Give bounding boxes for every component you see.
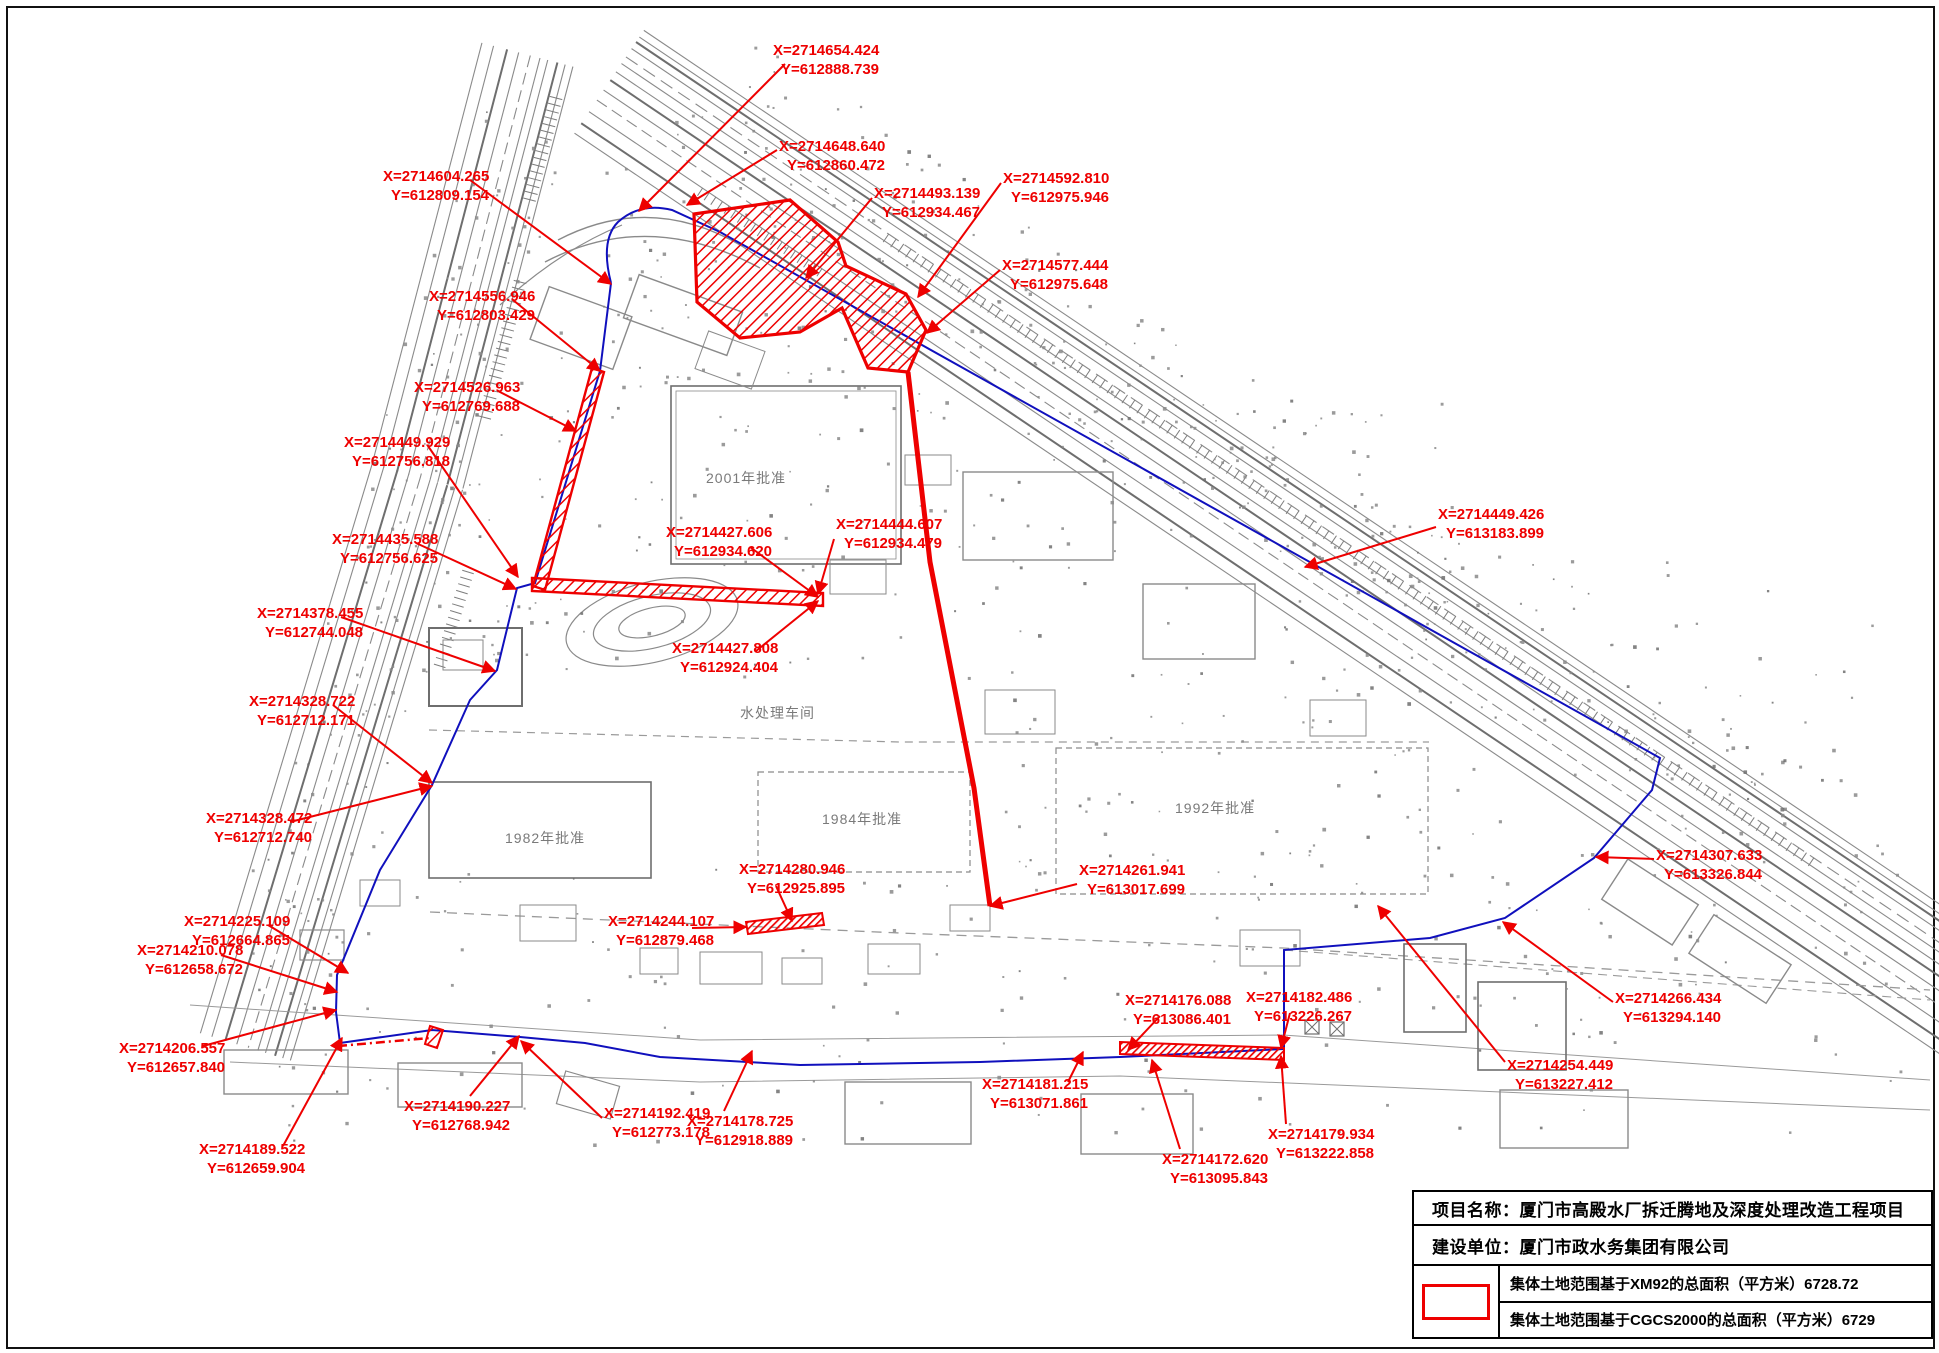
survey-point-dot bbox=[1185, 587, 1188, 590]
survey-point-dot bbox=[1334, 546, 1336, 548]
survey-point-dot bbox=[982, 602, 985, 605]
survey-point-dot bbox=[1212, 477, 1214, 479]
railway-tick bbox=[1204, 450, 1210, 458]
railway-tick bbox=[1368, 561, 1374, 569]
survey-point-dot bbox=[1689, 935, 1693, 939]
survey-point-dot bbox=[300, 913, 302, 915]
survey-point-dot bbox=[292, 1066, 295, 1069]
survey-point-dot bbox=[837, 437, 840, 440]
survey-point-dot bbox=[1409, 574, 1413, 578]
survey-point-dot bbox=[906, 264, 908, 266]
coordinate-y-text: Y=612975.946 bbox=[1011, 189, 1109, 206]
survey-point-dot bbox=[788, 345, 790, 347]
survey-point-dot bbox=[1754, 783, 1756, 785]
survey-point-dot bbox=[497, 620, 499, 622]
survey-point-dot bbox=[358, 734, 361, 737]
survey-point-dot bbox=[287, 900, 290, 903]
survey-point-dot bbox=[861, 1137, 864, 1140]
survey-point-dot bbox=[583, 631, 585, 633]
railway-tick bbox=[1018, 324, 1024, 332]
survey-point-dot bbox=[1713, 765, 1716, 768]
survey-point-dot bbox=[1218, 871, 1220, 873]
survey-point-dot bbox=[1193, 427, 1196, 430]
survey-point-dot bbox=[306, 950, 310, 954]
railway-tick bbox=[1734, 807, 1740, 815]
survey-point-dot bbox=[1535, 1024, 1538, 1027]
survey-point-dot bbox=[560, 599, 562, 601]
survey-point-dot bbox=[1729, 794, 1731, 796]
survey-point-dot bbox=[1691, 931, 1693, 933]
survey-point-dot bbox=[867, 1039, 870, 1042]
survey-point-dot bbox=[511, 227, 514, 230]
survey-point-dot bbox=[532, 147, 536, 151]
survey-point-dot bbox=[1543, 719, 1546, 722]
survey-point-dot bbox=[497, 189, 500, 192]
survey-point-dot bbox=[1243, 475, 1246, 478]
railway-tick bbox=[1361, 556, 1367, 564]
area-statements: 集体土地范围基于XM92的总面积（平方米）6728.72 集体土地范围基于CGC… bbox=[1500, 1266, 1931, 1337]
survey-point-dot bbox=[982, 303, 984, 305]
coordinate-x-text: X=2714444.607 bbox=[836, 516, 942, 533]
survey-point-dot bbox=[1204, 478, 1206, 480]
railway-tick bbox=[478, 416, 491, 419]
survey-point-dot bbox=[374, 704, 376, 706]
survey-point-dot bbox=[459, 881, 461, 883]
railway-tick bbox=[1696, 782, 1702, 790]
railway-tick bbox=[434, 664, 445, 667]
survey-point-dot bbox=[1896, 874, 1899, 877]
survey-point-dot bbox=[1357, 591, 1360, 594]
survey-point-dot bbox=[1211, 487, 1214, 490]
survey-point-dot bbox=[493, 654, 495, 656]
leader-line bbox=[1152, 1060, 1180, 1149]
survey-point-dot bbox=[1280, 551, 1282, 553]
area-row-cgcs2000: 集体土地范围基于CGCS2000的总面积（平方米）6729 bbox=[1500, 1303, 1931, 1338]
site-plan-drawing: X=2714654.424Y=612888.739X=2714648.640Y=… bbox=[0, 0, 1939, 1353]
railway-tick bbox=[454, 597, 465, 600]
survey-point-dot bbox=[362, 713, 364, 715]
survey-point-dot bbox=[860, 106, 862, 108]
coordinate-y-text: Y=612769.688 bbox=[422, 398, 520, 415]
survey-point-dot bbox=[518, 243, 522, 247]
leader-line bbox=[818, 539, 834, 594]
survey-point-dot bbox=[857, 387, 861, 391]
survey-point-dot bbox=[1019, 970, 1021, 972]
survey-point-dot bbox=[882, 260, 884, 262]
railway-tick bbox=[1764, 828, 1770, 836]
survey-point-dot bbox=[1332, 411, 1336, 415]
survey-point-dot bbox=[1688, 736, 1690, 738]
survey-point-dot bbox=[516, 280, 520, 284]
railway-tick bbox=[1256, 485, 1262, 493]
coordinate-callout: X=2714648.640Y=612860.472 bbox=[687, 138, 885, 205]
railway-tick bbox=[1197, 445, 1203, 453]
survey-point-dot bbox=[832, 204, 835, 207]
survey-point-dot bbox=[639, 367, 641, 369]
survey-point-dot bbox=[1835, 1053, 1837, 1055]
railway-tick bbox=[1114, 390, 1120, 398]
survey-point-dot bbox=[1520, 603, 1522, 605]
survey-point-dot bbox=[1203, 404, 1205, 406]
survey-point-dot bbox=[1692, 742, 1694, 744]
survey-point-dot bbox=[311, 793, 314, 796]
survey-point-dot bbox=[1580, 972, 1583, 975]
coordinate-callout: X=2714178.725Y=612918.889 bbox=[687, 1051, 793, 1149]
survey-point-dot bbox=[936, 953, 938, 955]
survey-point-dot bbox=[1705, 687, 1707, 689]
survey-point-dot bbox=[1434, 623, 1436, 625]
survey-point-dot bbox=[888, 965, 890, 967]
survey-point-dot bbox=[448, 534, 451, 537]
survey-point-dot bbox=[1320, 572, 1323, 575]
coordinate-callout: X=2714244.107Y=612879.468 bbox=[608, 913, 746, 949]
survey-point-dot bbox=[863, 882, 866, 885]
survey-point-dot bbox=[1094, 411, 1097, 414]
survey-point-dot bbox=[1085, 811, 1087, 813]
survey-point-dot bbox=[1144, 1059, 1147, 1062]
survey-point-dot bbox=[1607, 721, 1609, 723]
survey-point-dot bbox=[1042, 346, 1045, 349]
survey-point-dot bbox=[842, 370, 845, 373]
survey-point-dot bbox=[341, 941, 343, 943]
survey-point-dot bbox=[1656, 647, 1659, 650]
survey-point-dot bbox=[1472, 833, 1474, 835]
coordinate-callout: X=2714280.946Y=612925.895 bbox=[739, 861, 845, 921]
railway-tick bbox=[500, 335, 513, 338]
coordinate-x-text: X=2714435.588 bbox=[332, 531, 438, 548]
survey-point-dot bbox=[1505, 647, 1507, 649]
survey-point-dot bbox=[1351, 413, 1353, 415]
survey-point-dot bbox=[1722, 718, 1725, 721]
survey-point-dot bbox=[1533, 709, 1535, 711]
survey-point-dot bbox=[485, 366, 487, 368]
survey-point-dot bbox=[456, 421, 459, 424]
survey-point-dot bbox=[1083, 422, 1086, 425]
survey-point-dot bbox=[773, 107, 775, 109]
survey-point-dot bbox=[1890, 1080, 1892, 1082]
survey-point-dot bbox=[1200, 1127, 1203, 1130]
survey-point-dot bbox=[1038, 1114, 1040, 1116]
survey-point-dot bbox=[1111, 501, 1114, 504]
survey-point-dot bbox=[366, 1007, 369, 1010]
railway-tick bbox=[1801, 853, 1807, 861]
survey-point-dot bbox=[379, 1031, 381, 1033]
survey-point-dot bbox=[1131, 674, 1134, 677]
building-outline bbox=[905, 455, 951, 485]
survey-point-dot bbox=[1411, 657, 1413, 659]
site-plan-sheet: X=2714654.424Y=612888.739X=2714648.640Y=… bbox=[0, 0, 1939, 1353]
survey-point-dot bbox=[304, 1003, 306, 1005]
coordinate-y-text: Y=613017.699 bbox=[1087, 881, 1185, 898]
leader-line bbox=[470, 1036, 519, 1096]
survey-point-dot bbox=[617, 407, 620, 410]
survey-point-dot bbox=[921, 169, 924, 172]
survey-point-dot bbox=[687, 317, 689, 319]
survey-point-dot bbox=[959, 546, 961, 548]
survey-point-dot bbox=[1124, 1018, 1126, 1020]
survey-point-dot bbox=[1479, 1004, 1481, 1006]
survey-point-dot bbox=[1150, 716, 1152, 718]
survey-point-dot bbox=[1695, 984, 1697, 986]
survey-point-dot bbox=[675, 121, 678, 124]
survey-point-dot bbox=[1754, 784, 1756, 786]
survey-point-dot bbox=[790, 184, 792, 186]
survey-point-dot bbox=[406, 480, 408, 482]
survey-point-dot bbox=[1566, 988, 1568, 990]
survey-point-dot bbox=[1783, 759, 1786, 762]
survey-point-dot bbox=[1419, 689, 1422, 692]
railway-tick bbox=[1189, 440, 1195, 448]
railway-tick bbox=[493, 362, 506, 365]
survey-point-dot bbox=[1587, 699, 1590, 702]
survey-point-dot bbox=[444, 910, 446, 912]
building-outline bbox=[782, 958, 822, 984]
survey-point-dot bbox=[1677, 764, 1680, 767]
survey-point-dot bbox=[479, 535, 482, 538]
survey-point-dot bbox=[943, 417, 946, 420]
survey-point-dot bbox=[1124, 483, 1126, 485]
survey-point-dot bbox=[422, 668, 426, 672]
survey-point-dot bbox=[1301, 537, 1303, 539]
survey-point-dot bbox=[322, 899, 324, 901]
survey-point-dot bbox=[1167, 622, 1170, 625]
railway-tick bbox=[1323, 531, 1329, 539]
survey-point-dot bbox=[328, 953, 330, 955]
railway-tick bbox=[1226, 465, 1232, 473]
railway-tick bbox=[1234, 470, 1240, 478]
railway-tick bbox=[1450, 616, 1456, 624]
survey-point-dot bbox=[386, 414, 388, 416]
railway-tick bbox=[1279, 500, 1285, 508]
survey-point-dot bbox=[1546, 972, 1549, 975]
survey-point-dot bbox=[1475, 575, 1479, 579]
survey-point-dot bbox=[1285, 696, 1287, 698]
railway-tick bbox=[1249, 480, 1255, 488]
survey-point-dot bbox=[973, 524, 975, 526]
survey-point-dot bbox=[1221, 461, 1224, 464]
railway-tick bbox=[514, 280, 527, 283]
survey-point-dot bbox=[1666, 561, 1669, 564]
survey-point-dot bbox=[680, 517, 682, 519]
survey-point-dot bbox=[1052, 362, 1055, 365]
survey-point-dot bbox=[1783, 822, 1786, 825]
coordinate-x-text: X=2714206.557 bbox=[119, 1040, 225, 1057]
approval-area-label: 1982年批准 bbox=[505, 830, 585, 846]
survey-point-dot bbox=[665, 381, 668, 384]
railway-tick bbox=[1428, 601, 1434, 609]
railway-tick bbox=[1517, 661, 1523, 669]
road-line bbox=[438, 60, 548, 482]
survey-point-dot bbox=[663, 253, 666, 256]
railway-tick bbox=[958, 284, 964, 292]
coordinate-x-text: X=2714261.941 bbox=[1079, 862, 1185, 879]
survey-point-dot bbox=[660, 976, 663, 979]
survey-point-dot bbox=[994, 369, 997, 372]
railway-tick bbox=[1420, 596, 1426, 604]
coordinate-y-text: Y=612756.625 bbox=[340, 550, 438, 567]
survey-point-dot bbox=[446, 571, 449, 574]
survey-point-dot bbox=[1498, 556, 1501, 559]
survey-point-dot bbox=[995, 586, 998, 589]
coordinate-x-text: X=2714179.934 bbox=[1268, 1126, 1375, 1143]
owner-value: 厦门市政水务集团有限公司 bbox=[1520, 1233, 1730, 1258]
survey-point-dot bbox=[291, 852, 294, 855]
survey-point-dot bbox=[784, 97, 787, 100]
survey-point-dot bbox=[742, 178, 745, 181]
survey-point-dot bbox=[827, 367, 830, 370]
survey-point-dot bbox=[1357, 693, 1361, 697]
title-block-project-row: 项目名称： 厦门市高殿水厂拆迁腾地及深度处理改造工程项目 bbox=[1414, 1192, 1931, 1226]
survey-point-dot bbox=[1215, 420, 1217, 422]
survey-point-dot bbox=[458, 266, 462, 270]
approval-area-label: 1984年批准 bbox=[822, 811, 902, 827]
survey-point-dot bbox=[1064, 367, 1066, 369]
survey-point-dot bbox=[492, 1051, 495, 1054]
survey-point-dot bbox=[496, 194, 498, 196]
survey-point-dot bbox=[1380, 414, 1382, 416]
coordinate-x-text: X=2714328.472 bbox=[206, 810, 312, 827]
coordinate-x-text: X=2714190.227 bbox=[404, 1098, 510, 1115]
survey-point-dot bbox=[460, 1072, 464, 1076]
railway-tick bbox=[1719, 797, 1725, 805]
survey-point-dot bbox=[1832, 749, 1836, 753]
survey-point-dot bbox=[1271, 464, 1273, 466]
railway-tick bbox=[1674, 767, 1680, 775]
survey-point-dot bbox=[1600, 922, 1602, 924]
survey-point-dot bbox=[1170, 529, 1172, 531]
coordinate-x-text: X=2714378.455 bbox=[257, 605, 363, 622]
railway-tick bbox=[462, 570, 473, 573]
survey-point-dot bbox=[752, 130, 755, 133]
building-outline bbox=[700, 952, 762, 984]
pond-contour bbox=[616, 600, 689, 644]
survey-point-dot bbox=[1479, 1049, 1481, 1051]
railway-tick bbox=[1473, 631, 1479, 639]
coordinate-y-text: Y=612934.479 bbox=[844, 535, 942, 552]
survey-point-dot bbox=[1025, 866, 1027, 868]
railway-tick bbox=[1667, 762, 1673, 770]
survey-point-dot bbox=[872, 219, 875, 222]
coordinate-x-text: X=2714654.424 bbox=[773, 42, 880, 59]
survey-point-dot bbox=[968, 677, 971, 680]
coordinate-y-text: Y=612860.472 bbox=[787, 157, 885, 174]
survey-point-dot bbox=[641, 270, 644, 273]
survey-point-dot bbox=[1346, 594, 1348, 596]
survey-point-dot bbox=[1599, 1031, 1603, 1035]
survey-point-dot bbox=[1551, 700, 1553, 702]
survey-point-dot bbox=[1195, 456, 1197, 458]
survey-point-dot bbox=[1431, 535, 1433, 537]
survey-point-dot bbox=[1020, 630, 1022, 632]
coordinate-y-text: Y=612934.620 bbox=[674, 543, 772, 560]
survey-point-dot bbox=[685, 304, 687, 306]
survey-point-dot bbox=[1377, 987, 1381, 991]
survey-point-dot bbox=[1499, 820, 1502, 823]
survey-point-dot bbox=[469, 484, 471, 486]
survey-point-dot bbox=[1447, 601, 1449, 603]
survey-point-dot bbox=[841, 237, 844, 240]
railway-tick bbox=[1100, 380, 1106, 388]
survey-point-dot bbox=[938, 164, 941, 167]
coordinate-x-text: X=2714225.109 bbox=[184, 913, 290, 930]
survey-point-dot bbox=[844, 338, 847, 341]
coordinate-y-text: Y=613095.843 bbox=[1170, 1170, 1268, 1187]
survey-point-dot bbox=[486, 111, 488, 113]
survey-point-dot bbox=[307, 920, 309, 922]
survey-point-dot bbox=[898, 884, 901, 887]
survey-point-dot bbox=[1266, 456, 1268, 458]
survey-point-dot bbox=[1484, 668, 1487, 671]
survey-point-dot bbox=[622, 386, 626, 390]
survey-point-dot bbox=[864, 387, 866, 389]
survey-point-dot bbox=[587, 999, 590, 1002]
survey-point-dot bbox=[687, 377, 690, 380]
survey-point-dot bbox=[956, 470, 958, 472]
coordinate-y-text: Y=612934.467 bbox=[882, 204, 980, 221]
survey-point-dot bbox=[661, 499, 663, 501]
survey-point-dot bbox=[489, 519, 491, 521]
railway-tick bbox=[1137, 405, 1143, 413]
survey-point-dot bbox=[788, 372, 790, 374]
survey-point-dot bbox=[877, 258, 880, 261]
survey-point-dot bbox=[329, 973, 332, 976]
survey-point-dot bbox=[1069, 413, 1071, 415]
survey-point-dot bbox=[526, 654, 528, 656]
survey-point-dot bbox=[1003, 1042, 1005, 1044]
survey-point-dot bbox=[1200, 672, 1203, 675]
survey-point-dot bbox=[1033, 718, 1036, 721]
railway-tick bbox=[1779, 838, 1785, 846]
legend-cell bbox=[1414, 1266, 1500, 1337]
survey-point-dot bbox=[506, 605, 508, 607]
railway-tick bbox=[943, 274, 949, 282]
coordinate-callout: X=2714172.620Y=613095.843 bbox=[1152, 1060, 1268, 1187]
coordinate-y-text: Y=613227.412 bbox=[1515, 1076, 1613, 1093]
survey-point-dot bbox=[391, 691, 394, 694]
survey-point-dot bbox=[1096, 399, 1098, 401]
railway-tick bbox=[1458, 621, 1464, 629]
leader-line bbox=[470, 180, 611, 284]
survey-point-dot bbox=[1417, 552, 1419, 554]
coordinate-y-text: Y=613222.858 bbox=[1276, 1145, 1374, 1162]
survey-point-dot bbox=[862, 657, 865, 660]
survey-point-dot bbox=[1591, 853, 1594, 856]
survey-point-dot bbox=[979, 346, 982, 349]
survey-point-dot bbox=[1188, 683, 1190, 685]
parcel-legend-swatch bbox=[1422, 1284, 1490, 1320]
survey-point-dot bbox=[1067, 542, 1070, 545]
survey-point-dot bbox=[1354, 562, 1358, 566]
railway-tick bbox=[446, 624, 457, 627]
survey-point-dot bbox=[1432, 1006, 1435, 1009]
survey-point-dot bbox=[1465, 628, 1467, 630]
survey-point-dot bbox=[1309, 854, 1311, 856]
leader-line bbox=[341, 617, 495, 671]
survey-point-dot bbox=[1885, 983, 1888, 986]
survey-point-dot bbox=[369, 1079, 371, 1081]
survey-point-dot bbox=[1444, 558, 1446, 560]
railway-tick bbox=[1547, 682, 1553, 690]
railway-tick bbox=[973, 294, 979, 302]
survey-point-dot bbox=[896, 1011, 899, 1014]
survey-point-dot bbox=[605, 172, 608, 175]
railway-tick bbox=[717, 202, 722, 209]
survey-point-dot bbox=[1114, 550, 1116, 552]
survey-point-dot bbox=[451, 984, 454, 987]
survey-point-dot bbox=[1356, 883, 1358, 885]
coordinate-x-text: X=2714266.434 bbox=[1615, 990, 1722, 1007]
coordinate-callout: X=2714526.963Y=612769.688 bbox=[414, 379, 576, 431]
